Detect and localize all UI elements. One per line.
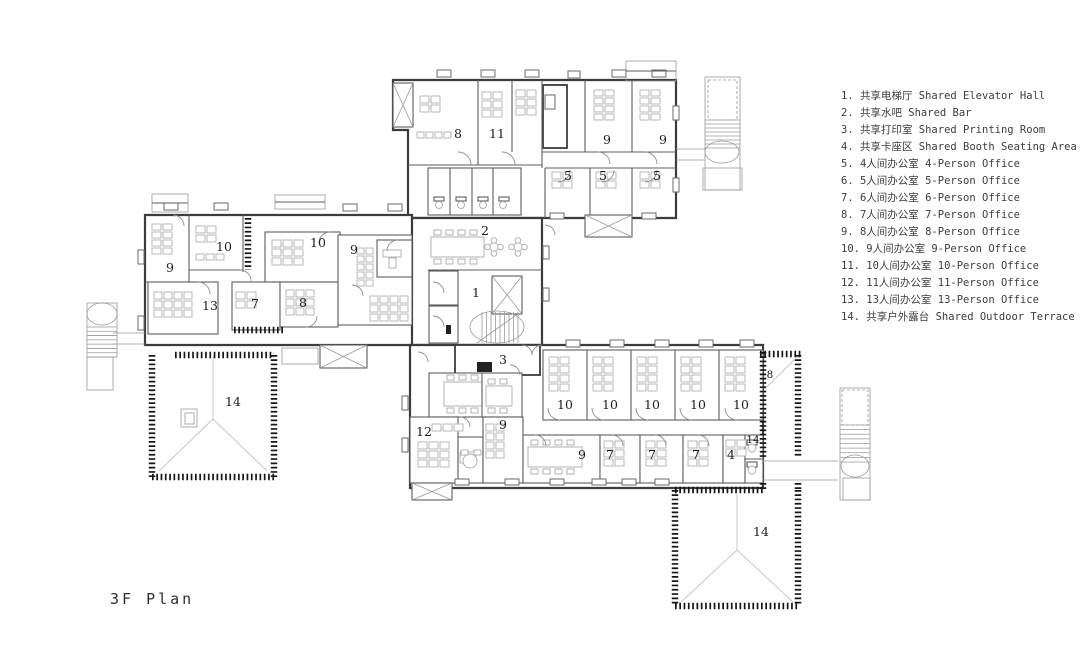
desk	[440, 460, 449, 467]
window-bump	[138, 316, 144, 330]
desk	[357, 272, 364, 278]
desk	[366, 256, 373, 262]
desk	[640, 98, 649, 104]
room-number: 11	[489, 126, 505, 141]
desk	[152, 240, 161, 246]
legend-item: 1. 共享电梯厅 Shared Elevator Hall	[841, 88, 1077, 105]
round-table-chair	[491, 238, 497, 244]
desk	[637, 384, 646, 391]
wall-rect	[705, 77, 740, 190]
desk	[737, 440, 746, 447]
window-bump	[622, 479, 636, 485]
desk	[549, 357, 558, 364]
desk	[184, 310, 192, 317]
desk	[736, 375, 745, 382]
chair	[458, 230, 465, 235]
legend-item: 11. 10人间办公室 10-Person Office	[841, 258, 1077, 275]
window-bump	[437, 70, 451, 77]
desk	[196, 254, 204, 260]
desk	[725, 357, 734, 364]
window-bump	[543, 246, 549, 259]
legend-item: 9. 8人间办公室 8-Person Office	[841, 224, 1077, 241]
room-number: 9	[578, 447, 586, 462]
desk	[527, 99, 536, 106]
desk	[164, 310, 172, 317]
desk	[549, 366, 558, 373]
window-bump	[550, 479, 564, 485]
room-number: 5	[599, 168, 607, 183]
desk	[594, 114, 603, 120]
chair	[446, 230, 453, 235]
desk	[154, 310, 162, 317]
wall-rect	[434, 197, 444, 201]
roof-ridge-line	[737, 550, 793, 602]
chair	[555, 469, 562, 474]
desk	[593, 357, 602, 364]
desk	[431, 105, 440, 112]
round-table-chair	[515, 238, 521, 244]
chair	[447, 375, 454, 380]
legend: 1. 共享电梯厅 Shared Elevator Hall2. 共享水吧 Sha…	[841, 88, 1077, 326]
desk	[648, 366, 657, 373]
desk	[174, 301, 182, 308]
round-table	[514, 243, 522, 251]
legend-item: 4. 共享卡座区 Shared Booth Seating Area	[841, 139, 1077, 156]
legend-item: 10. 9人间办公室 9-Person Office	[841, 241, 1077, 258]
desk	[435, 132, 442, 138]
desk	[651, 114, 660, 120]
window-bump	[455, 479, 469, 485]
chair	[446, 259, 453, 264]
desk	[206, 254, 214, 260]
chair	[459, 408, 466, 413]
desk	[380, 296, 388, 303]
desk	[516, 99, 525, 106]
desk	[272, 258, 281, 265]
desk	[657, 441, 666, 448]
desk	[482, 92, 491, 99]
legend-item: 7. 6人间办公室 6-Person Office	[841, 190, 1077, 207]
desk	[657, 450, 666, 457]
chair	[474, 450, 481, 455]
desk	[726, 440, 735, 447]
desk	[699, 459, 708, 466]
desk	[725, 384, 734, 391]
desk	[184, 292, 192, 299]
desk	[736, 357, 745, 364]
desk	[482, 101, 491, 108]
chair	[500, 379, 507, 384]
chair	[488, 408, 495, 413]
desk	[640, 90, 649, 96]
desk	[357, 264, 364, 270]
window-bump	[655, 340, 669, 347]
legend-item: 6. 5人间办公室 5-Person Office	[841, 173, 1077, 190]
desk	[426, 132, 433, 138]
desk	[366, 248, 373, 254]
table	[431, 237, 484, 257]
wall-rect	[265, 232, 340, 282]
desk	[527, 108, 536, 115]
window-bump	[388, 204, 402, 211]
desk	[283, 249, 292, 256]
desk	[493, 92, 502, 99]
desk	[236, 301, 245, 308]
desk	[493, 110, 502, 117]
desk	[615, 450, 624, 457]
chair	[470, 259, 477, 264]
desk	[163, 224, 172, 230]
wall-rect	[456, 197, 466, 201]
wall-rect	[478, 197, 488, 201]
desk	[681, 384, 690, 391]
solid-fixture	[477, 362, 492, 372]
room-number: 8	[299, 295, 307, 310]
round-table-chair	[509, 244, 515, 250]
desk	[418, 460, 427, 467]
desk	[283, 240, 292, 247]
window-bump	[642, 213, 656, 219]
legend-item: 12. 11人间办公室 11-Person Office	[841, 275, 1077, 292]
desk	[552, 172, 561, 179]
desk	[648, 384, 657, 391]
desk	[692, 357, 701, 364]
room-number: 10	[216, 239, 232, 254]
room-number: 10	[644, 397, 660, 412]
desk	[454, 424, 463, 431]
window-bump	[545, 95, 555, 109]
desk	[306, 290, 314, 297]
desk	[605, 106, 614, 112]
fixture-circle	[480, 202, 487, 209]
desk	[496, 433, 504, 440]
desk	[366, 280, 373, 286]
desk	[163, 248, 172, 254]
desk	[493, 101, 502, 108]
desk	[390, 296, 398, 303]
table	[528, 447, 582, 467]
room-number: 5	[653, 168, 661, 183]
desk	[640, 114, 649, 120]
fixture-circle	[500, 202, 507, 209]
fixture-circle	[748, 466, 756, 474]
solid-fixture	[446, 325, 451, 334]
desk	[594, 90, 603, 96]
desk	[648, 357, 657, 364]
desk	[651, 90, 660, 96]
room-number: 3	[499, 352, 507, 367]
desk	[648, 375, 657, 382]
window-bump	[543, 288, 549, 301]
wall-rect	[708, 80, 737, 120]
desk	[681, 366, 690, 373]
window-bump	[592, 479, 606, 485]
desk	[418, 442, 427, 449]
table	[389, 258, 396, 268]
chair	[459, 375, 466, 380]
table	[383, 250, 401, 257]
desk	[286, 299, 294, 306]
door-arc	[545, 225, 555, 235]
round-table-chair	[491, 251, 497, 257]
round-table-chair	[485, 244, 491, 250]
window-bump	[566, 340, 580, 347]
chair	[461, 450, 468, 455]
desk	[725, 375, 734, 382]
desk	[418, 451, 427, 458]
chair	[567, 469, 574, 474]
legend-item: 2. 共享水吧 Shared Bar	[841, 105, 1077, 122]
desk	[380, 305, 388, 312]
window-bump	[612, 70, 626, 77]
desk	[429, 442, 438, 449]
desk	[605, 90, 614, 96]
table	[444, 382, 482, 406]
room-number: 10	[733, 397, 749, 412]
desk	[640, 106, 649, 112]
room-number: 9	[659, 132, 667, 147]
room-number: 13	[202, 298, 218, 313]
wall-rect	[840, 388, 870, 500]
floor-plan-page: 8119955521391010913781010101010129977741…	[0, 0, 1080, 665]
desk	[443, 424, 452, 431]
wall-rect	[703, 168, 742, 190]
desk	[370, 305, 378, 312]
wall-rect	[499, 197, 509, 201]
legend-item: 5. 4人间办公室 4-Person Office	[841, 156, 1077, 173]
desk	[605, 114, 614, 120]
room-number: 9	[350, 242, 358, 257]
desk	[370, 314, 378, 321]
desk	[174, 310, 182, 317]
desk	[527, 90, 536, 97]
desk	[366, 264, 373, 270]
desk	[444, 132, 451, 138]
desk	[400, 305, 408, 312]
chair	[471, 375, 478, 380]
desk	[163, 232, 172, 238]
desk	[174, 292, 182, 299]
desk	[357, 256, 364, 262]
wall-rect	[429, 271, 458, 305]
stair-landing	[87, 303, 117, 325]
window-bump	[699, 340, 713, 347]
desk	[725, 366, 734, 373]
window-bump	[610, 340, 624, 347]
chair	[488, 379, 495, 384]
desk	[286, 290, 294, 297]
round-table-chair	[522, 244, 528, 250]
room-number: 12	[416, 424, 432, 439]
chair	[531, 440, 538, 445]
legend-item: 8. 7人间办公室 7-Person Office	[841, 207, 1077, 224]
desk	[516, 90, 525, 97]
desk	[429, 451, 438, 458]
desk	[196, 226, 205, 233]
wall-rect	[455, 345, 540, 375]
desk	[593, 375, 602, 382]
window-bump	[655, 479, 669, 485]
desk	[154, 292, 162, 299]
fixture-circle	[463, 454, 477, 468]
wall-rect	[185, 413, 194, 424]
room-number: 10	[557, 397, 573, 412]
room-number: 10	[310, 235, 326, 250]
desk	[516, 108, 525, 115]
desk	[486, 424, 494, 431]
desk	[736, 384, 745, 391]
desk	[366, 272, 373, 278]
room-number: 7	[606, 447, 614, 462]
chair	[458, 259, 465, 264]
roof-ridge-line	[681, 550, 737, 602]
chair	[447, 408, 454, 413]
desk	[699, 441, 708, 448]
chair	[434, 230, 441, 235]
desk	[607, 181, 616, 188]
room-number: 5	[564, 168, 572, 183]
window-bump	[214, 203, 228, 210]
desk	[417, 132, 424, 138]
room-number: 1	[472, 285, 480, 300]
desk	[486, 451, 494, 458]
desk	[272, 240, 281, 247]
desk	[420, 105, 429, 112]
wall-rect	[543, 85, 567, 148]
desk	[152, 232, 161, 238]
window-bump	[673, 106, 679, 120]
room-number: 14	[753, 524, 769, 539]
desk	[605, 98, 614, 104]
desk	[306, 299, 314, 306]
stair-landing	[841, 455, 869, 477]
desk	[440, 442, 449, 449]
room-number: 10	[602, 397, 618, 412]
desk	[420, 96, 429, 103]
wall-rect	[87, 357, 113, 390]
room-number: 14	[225, 394, 241, 409]
desk	[637, 375, 646, 382]
desk	[604, 375, 613, 382]
window-bump	[343, 204, 357, 211]
desk	[390, 314, 398, 321]
desk	[306, 308, 314, 315]
desk	[272, 249, 281, 256]
desk	[593, 366, 602, 373]
chair	[555, 440, 562, 445]
wall-rect	[428, 168, 521, 215]
desk	[604, 366, 613, 373]
chair	[470, 230, 477, 235]
window-bump	[164, 203, 178, 210]
window-bump	[673, 178, 679, 192]
desk	[640, 172, 649, 179]
desk	[429, 460, 438, 467]
window-bump	[525, 70, 539, 77]
chair	[543, 469, 550, 474]
desk	[184, 301, 192, 308]
desk	[400, 314, 408, 321]
desk	[440, 451, 449, 458]
wall-rect	[843, 478, 870, 500]
desk	[380, 314, 388, 321]
desk	[615, 459, 624, 466]
desk	[560, 375, 569, 382]
desk	[482, 110, 491, 117]
room-number: 4	[727, 447, 735, 462]
desk	[283, 258, 292, 265]
roof-ridge-line	[213, 419, 267, 471]
desk	[294, 249, 303, 256]
plan-title: 3F Plan	[110, 590, 194, 608]
wall-rect	[842, 390, 868, 425]
fixture-circle	[458, 202, 465, 209]
desk	[604, 384, 613, 391]
desk	[294, 258, 303, 265]
window-bump	[402, 438, 408, 452]
room-number: 9	[603, 132, 611, 147]
room-number: 9	[499, 417, 507, 432]
chair	[434, 259, 441, 264]
desk	[496, 442, 504, 449]
desk	[560, 357, 569, 364]
desk	[593, 384, 602, 391]
desk	[549, 375, 558, 382]
desk	[496, 451, 504, 458]
room-number: 10	[690, 397, 706, 412]
desk	[651, 106, 660, 112]
desk	[164, 301, 172, 308]
room-number: 8	[454, 126, 462, 141]
desk	[400, 296, 408, 303]
room-number: 8	[767, 369, 774, 381]
desk	[163, 240, 172, 246]
desk	[637, 366, 646, 373]
desk	[604, 357, 613, 364]
desk	[699, 450, 708, 457]
window-bump	[740, 340, 754, 347]
desk	[390, 305, 398, 312]
window-bump	[505, 479, 519, 485]
desk	[357, 280, 364, 286]
desk	[486, 433, 494, 440]
fixture-circle	[436, 202, 443, 209]
round-table-chair	[498, 244, 504, 250]
desk	[432, 424, 441, 431]
desk	[549, 384, 558, 391]
chair	[567, 440, 574, 445]
desk	[737, 449, 746, 456]
desk	[236, 292, 245, 299]
desk	[154, 301, 162, 308]
desk	[681, 375, 690, 382]
desk	[370, 296, 378, 303]
desk	[692, 384, 701, 391]
round-table	[490, 243, 498, 251]
chair	[471, 408, 478, 413]
room-number: 2	[481, 223, 489, 238]
desk	[152, 224, 161, 230]
window-bump	[402, 396, 408, 410]
wall-rect	[87, 303, 117, 357]
desk	[152, 248, 161, 254]
desk	[294, 240, 303, 247]
room-number: 9	[166, 260, 174, 275]
legend-item: 14. 共享户外露台 Shared Outdoor Terrace	[841, 309, 1077, 326]
desk	[207, 226, 216, 233]
desk	[286, 308, 294, 315]
desk	[637, 357, 646, 364]
